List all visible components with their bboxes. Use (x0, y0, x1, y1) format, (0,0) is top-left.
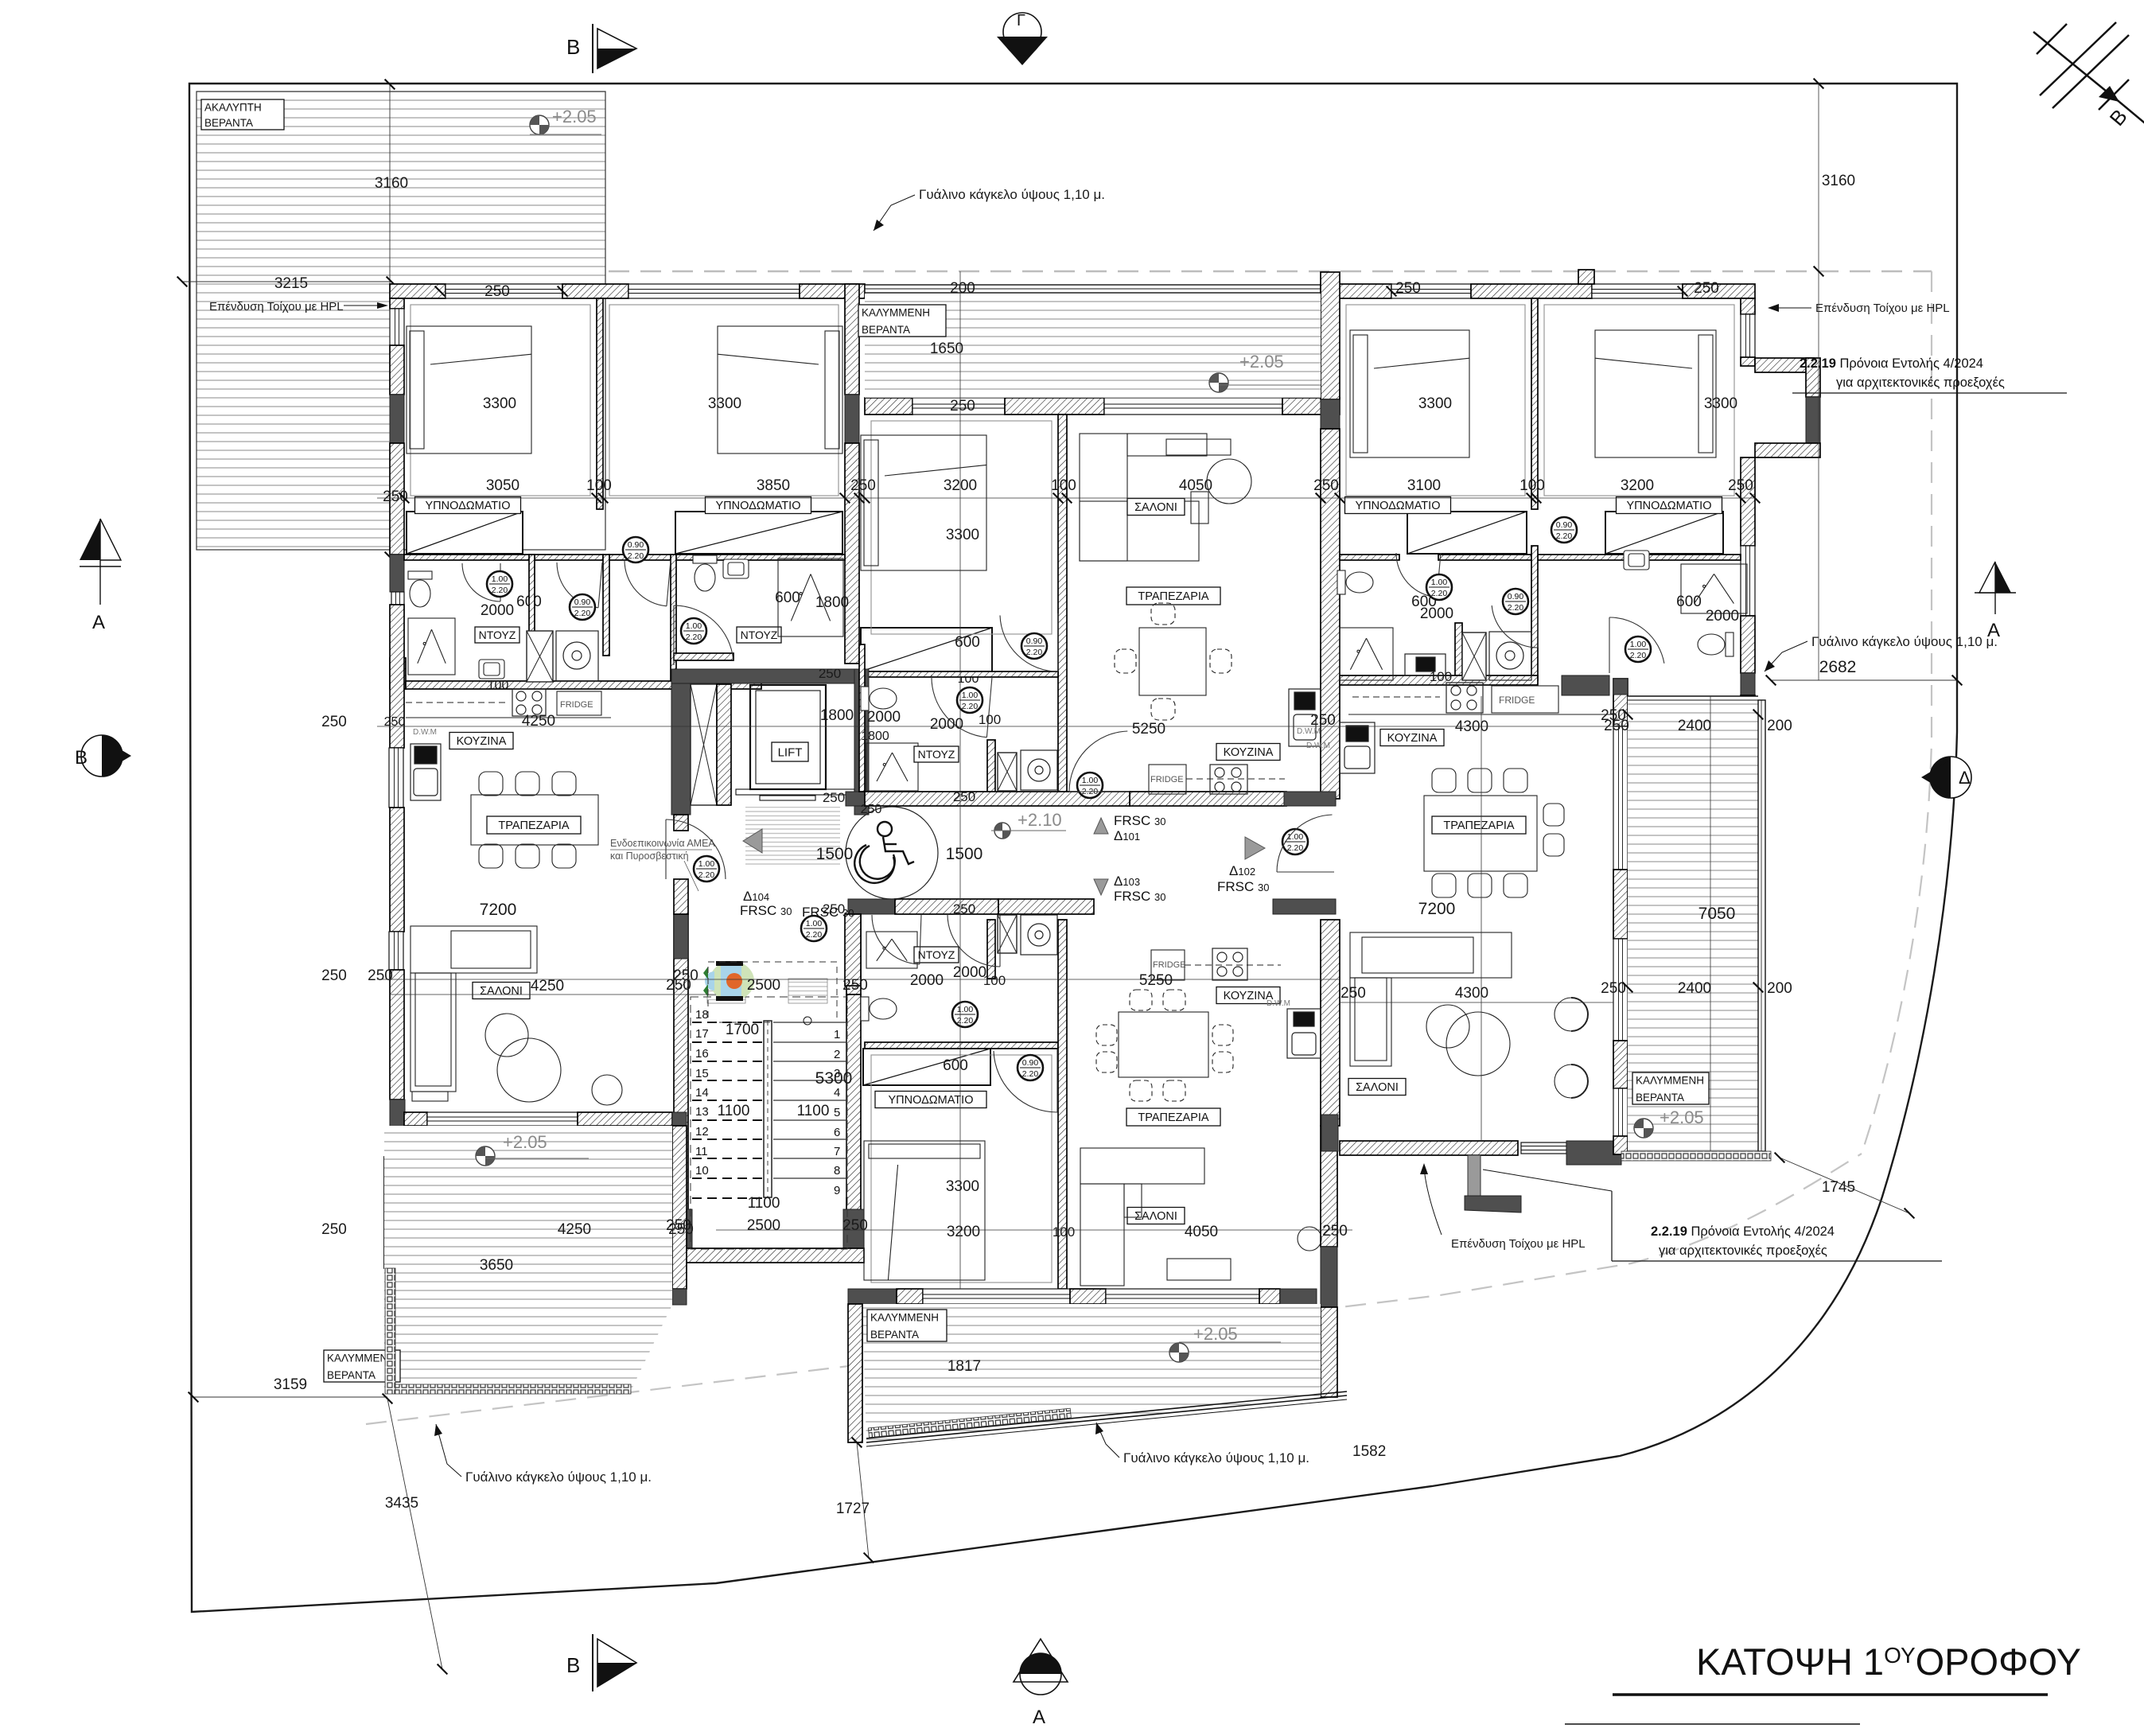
svg-text:4300: 4300 (1455, 718, 1488, 735)
svg-text:Δ101: Δ101 (1114, 828, 1140, 843)
svg-text:3300: 3300 (708, 395, 741, 412)
svg-text:3200: 3200 (1621, 477, 1654, 494)
svg-text:1100: 1100 (748, 1195, 780, 1212)
svg-text:ΝΤΟΥΖ: ΝΤΟΥΖ (741, 629, 778, 641)
svg-text:ΣΑΛΟΝΙ: ΣΑΛΟΝΙ (480, 985, 523, 998)
svg-text:για αρχιτεκτονικές προεξοχές: για αρχιτεκτονικές προεξοχές (1836, 376, 2005, 390)
svg-text:+2.05: +2.05 (1660, 1107, 1704, 1127)
svg-text:16: 16 (695, 1047, 709, 1061)
svg-text:250: 250 (1313, 477, 1339, 494)
svg-text:600: 600 (955, 634, 980, 651)
svg-text:0.90: 0.90 (1508, 592, 1524, 601)
svg-text:ΒΕΡΑΝΤΑ: ΒΕΡΑΝΤΑ (1636, 1092, 1684, 1103)
svg-text:+2.10: +2.10 (1018, 810, 1062, 830)
svg-text:1817: 1817 (947, 1358, 981, 1375)
svg-text:200: 200 (1767, 980, 1792, 997)
svg-text:FRSC 30: FRSC 30 (1217, 879, 1269, 894)
svg-text:2.20: 2.20 (492, 586, 508, 595)
svg-text:1.00: 1.00 (1431, 578, 1448, 587)
svg-text:2500: 2500 (747, 1217, 780, 1234)
svg-text:250: 250 (321, 967, 347, 984)
svg-text:Γυάλινο κάγκελο ύψους 1,10 μ.: Γυάλινο κάγκελο ύψους 1,10 μ. (1811, 634, 1998, 649)
svg-text:4250: 4250 (558, 1221, 591, 1238)
svg-text:4250: 4250 (522, 713, 555, 730)
svg-text:250: 250 (953, 901, 975, 917)
svg-text:ΤΡΑΠΕΖΑΡΙΑ: ΤΡΑΠΕΖΑΡΙΑ (498, 819, 569, 832)
svg-text:1.00: 1.00 (698, 859, 715, 869)
svg-text:250: 250 (321, 714, 347, 730)
svg-text:1100: 1100 (797, 1103, 830, 1119)
svg-text:1800: 1800 (820, 707, 854, 724)
svg-text:ΤΡΑΠΕΖΑΡΙΑ: ΤΡΑΠΕΖΑΡΙΑ (1138, 590, 1208, 603)
svg-text:7200: 7200 (1418, 900, 1456, 918)
svg-text:Δ102: Δ102 (1229, 863, 1255, 878)
svg-text:B: B (566, 1653, 580, 1677)
svg-text:2.20: 2.20 (628, 551, 644, 561)
svg-text:1800: 1800 (815, 594, 849, 611)
svg-text:FRIDGE: FRIDGE (1499, 695, 1535, 706)
svg-text:B: B (566, 35, 580, 59)
svg-text:2.20: 2.20 (957, 1016, 974, 1026)
svg-text:100: 100 (1051, 477, 1076, 494)
svg-text:100: 100 (1430, 669, 1452, 684)
svg-text:2.20: 2.20 (1630, 651, 1647, 660)
svg-text:2.20: 2.20 (698, 870, 715, 880)
svg-text:+2.05: +2.05 (1239, 352, 1284, 372)
svg-text:100: 100 (1519, 477, 1545, 494)
svg-text:2000: 2000 (1706, 608, 1739, 625)
svg-text:250: 250 (1322, 1223, 1348, 1240)
svg-text:ΥΠΝΟΔΩΜΑΤΙΟ: ΥΠΝΟΔΩΜΑΤΙΟ (716, 500, 801, 512)
svg-text:1700: 1700 (726, 1022, 759, 1038)
svg-text:2682: 2682 (1819, 658, 1857, 676)
svg-text:ΣΑΛΟΝΙ: ΣΑΛΟΝΙ (1134, 1210, 1177, 1223)
svg-text:ΥΠΝΟΔΩΜΑΤΙΟ: ΥΠΝΟΔΩΜΑΤΙΟ (1627, 500, 1712, 512)
svg-text:2.20: 2.20 (574, 609, 591, 618)
svg-text:8: 8 (834, 1164, 840, 1177)
svg-text:2.20: 2.20 (1287, 843, 1304, 853)
svg-text:2400: 2400 (1678, 980, 1711, 997)
svg-text:Δ104: Δ104 (743, 889, 769, 904)
svg-text:12: 12 (695, 1125, 709, 1139)
svg-text:3435: 3435 (385, 1495, 418, 1512)
svg-text:ΚΑΛΥΜΜΕΝΗ: ΚΑΛΥΜΜΕΝΗ (1636, 1075, 1704, 1087)
svg-text:1582: 1582 (1352, 1443, 1386, 1460)
svg-text:3300: 3300 (946, 1178, 979, 1195)
svg-text:1100: 1100 (718, 1103, 750, 1119)
svg-text:2000: 2000 (910, 972, 944, 989)
svg-text:3300: 3300 (1704, 395, 1737, 412)
svg-text:600: 600 (775, 590, 800, 606)
svg-text:2000: 2000 (930, 716, 963, 733)
svg-text:3300: 3300 (946, 527, 979, 543)
svg-text:11: 11 (695, 1145, 708, 1158)
svg-text:3650: 3650 (480, 1257, 513, 1274)
svg-text:2.20: 2.20 (1026, 648, 1043, 657)
svg-text:100: 100 (979, 712, 1001, 727)
svg-text:7200: 7200 (480, 901, 517, 919)
svg-text:1.00: 1.00 (1287, 832, 1304, 842)
svg-text:250: 250 (950, 398, 975, 415)
svg-text:ΚΑΛΥΜΜΕΝΗ: ΚΑΛΥΜΜΕΝΗ (870, 1312, 939, 1324)
svg-text:250: 250 (1340, 985, 1366, 1002)
svg-text:D.W.M: D.W.M (1267, 999, 1290, 1008)
svg-text:+2.05: +2.05 (1193, 1324, 1238, 1344)
svg-text:ΒΕΡΑΝΤΑ: ΒΕΡΑΝΤΑ (327, 1369, 375, 1381)
svg-text:10: 10 (695, 1164, 709, 1177)
svg-text:1.00: 1.00 (806, 919, 823, 928)
svg-text:600: 600 (943, 1057, 968, 1074)
svg-text:2000: 2000 (867, 709, 901, 726)
svg-text:1727: 1727 (836, 1501, 870, 1517)
svg-text:A: A (1033, 1707, 1045, 1728)
svg-text:LIFT: LIFT (778, 745, 803, 759)
svg-text:3050: 3050 (486, 477, 519, 494)
svg-text:5250: 5250 (1132, 721, 1165, 738)
svg-text:FRIDGE: FRIDGE (1150, 775, 1184, 784)
svg-text:2.20: 2.20 (1022, 1069, 1039, 1079)
svg-text:200: 200 (950, 280, 975, 297)
svg-text:1: 1 (834, 1028, 840, 1041)
svg-text:Γυάλινο κάγκελο ύψους 1,10 μ.: Γυάλινο κάγκελο ύψους 1,10 μ. (465, 1469, 652, 1485)
svg-text:3850: 3850 (757, 477, 790, 494)
svg-text:250: 250 (384, 715, 406, 729)
svg-text:2.2.19 Πρόνοια Εντολής 4/2024: 2.2.19 Πρόνοια Εντολής 4/2024 (1651, 1224, 1835, 1239)
svg-text:Δ: Δ (1959, 768, 1971, 788)
svg-text:FRIDGE: FRIDGE (1153, 960, 1186, 970)
svg-text:ΒΕΡΑΝΤΑ: ΒΕΡΑΝΤΑ (870, 1329, 919, 1341)
svg-text:ΚΑΛΥΜΜΕΝΗ: ΚΑΛΥΜΜΕΝΗ (862, 307, 930, 319)
svg-text:FRSC 30: FRSC 30 (1114, 813, 1165, 828)
svg-text:3159: 3159 (274, 1376, 307, 1393)
svg-text:250: 250 (842, 1217, 868, 1234)
svg-text:250: 250 (383, 488, 408, 505)
svg-text:ΣΑΛΟΝΙ: ΣΑΛΟΝΙ (1134, 501, 1177, 514)
svg-text:14: 14 (695, 1086, 709, 1100)
svg-text:B: B (75, 747, 88, 769)
svg-text:1.00: 1.00 (1082, 776, 1099, 785)
svg-text:ΥΠΝΟΔΩΜΑΤΙΟ: ΥΠΝΟΔΩΜΑΤΙΟ (889, 1094, 974, 1107)
svg-text:1.00: 1.00 (492, 574, 508, 584)
svg-text:+2.05: +2.05 (503, 1132, 547, 1152)
svg-text:ΒΕΡΑΝΤΑ: ΒΕΡΑΝΤΑ (862, 324, 910, 336)
svg-text:1.00: 1.00 (686, 621, 702, 631)
svg-text:100: 100 (586, 477, 612, 494)
svg-text:250: 250 (1601, 980, 1626, 997)
svg-text:100: 100 (983, 973, 1006, 988)
svg-text:2400: 2400 (1678, 718, 1711, 734)
svg-text:3200: 3200 (947, 1224, 980, 1240)
svg-text:2.20: 2.20 (806, 930, 823, 940)
svg-text:250: 250 (1728, 477, 1753, 494)
svg-text:4250: 4250 (531, 978, 564, 995)
svg-text:600: 600 (1676, 594, 1702, 610)
svg-text:ΑΚΑΛΥΠΤΗ: ΑΚΑΛΥΠΤΗ (204, 102, 262, 114)
svg-text:6: 6 (834, 1126, 840, 1139)
svg-text:250: 250 (1694, 280, 1719, 297)
svg-text:ΤΡΑΠΕΖΑΡΙΑ: ΤΡΑΠΕΖΑΡΙΑ (1443, 819, 1514, 832)
svg-text:Επένδυση Τοίχου με HPL: Επένδυση Τοίχου με HPL (1451, 1237, 1586, 1251)
svg-text:0.90: 0.90 (1556, 520, 1573, 530)
svg-text:4050: 4050 (1185, 1224, 1218, 1240)
svg-text:2.20: 2.20 (686, 633, 702, 642)
svg-text:ΣΑΛΟΝΙ: ΣΑΛΟΝΙ (1356, 1081, 1399, 1094)
svg-text:5: 5 (834, 1106, 840, 1119)
svg-text:D.W.M: D.W.M (413, 728, 437, 737)
svg-text:0.90: 0.90 (574, 597, 591, 607)
svg-text:1745: 1745 (1822, 1179, 1855, 1196)
svg-text:Επένδυση Τοίχου με HPL: Επένδυση Τοίχου με HPL (1815, 302, 1950, 315)
svg-text:200: 200 (1767, 718, 1792, 734)
svg-text:250: 250 (368, 967, 393, 984)
svg-text:2.20: 2.20 (962, 702, 979, 711)
svg-text:ΥΠΝΟΔΩΜΑΤΙΟ: ΥΠΝΟΔΩΜΑΤΙΟ (1356, 500, 1441, 512)
svg-text:1650: 1650 (930, 341, 963, 357)
svg-text:7050: 7050 (1698, 905, 1736, 923)
svg-text:Γ: Γ (1017, 12, 1025, 29)
svg-text:0.90: 0.90 (628, 540, 644, 550)
svg-text:3100: 3100 (1407, 477, 1441, 494)
svg-text:9: 9 (834, 1184, 840, 1197)
svg-text:250: 250 (321, 1221, 347, 1238)
svg-text:2000: 2000 (953, 964, 986, 981)
svg-text:250: 250 (484, 283, 510, 300)
svg-text:250: 250 (823, 901, 845, 917)
svg-text:1.00: 1.00 (962, 691, 979, 700)
svg-text:3215: 3215 (274, 275, 308, 292)
svg-text:5300: 5300 (815, 1069, 853, 1088)
svg-text:100: 100 (1053, 1224, 1075, 1240)
svg-text:1500: 1500 (816, 845, 854, 863)
svg-text:ΝΤΟΥΖ: ΝΤΟΥΖ (918, 948, 955, 961)
svg-text:ΝΤΟΥΖ: ΝΤΟΥΖ (918, 748, 955, 761)
svg-text:ΒΕΡΑΝΤΑ: ΒΕΡΑΝΤΑ (204, 117, 253, 129)
svg-text:17: 17 (695, 1027, 709, 1041)
svg-text:250: 250 (850, 477, 876, 494)
svg-text:Δ103: Δ103 (1114, 874, 1140, 889)
svg-text:250: 250 (823, 790, 845, 805)
svg-text:1.00: 1.00 (957, 1005, 974, 1014)
svg-text:250: 250 (953, 789, 975, 804)
svg-text:0.90: 0.90 (1022, 1058, 1039, 1068)
svg-text:250: 250 (1395, 280, 1421, 297)
svg-text:250: 250 (861, 803, 882, 816)
svg-text:2.20: 2.20 (1431, 589, 1448, 598)
svg-text:4: 4 (834, 1086, 840, 1100)
svg-text:FRSC 30: FRSC 30 (1114, 889, 1165, 904)
svg-text:για αρχιτεκτονικές προεξοχές: για αρχιτεκτονικές προεξοχές (1659, 1244, 1827, 1258)
svg-text:2.20: 2.20 (1508, 603, 1524, 613)
svg-text:ΚΟΥΖΙΝΑ: ΚΟΥΖΙΝΑ (1387, 732, 1438, 745)
svg-text:3300: 3300 (1418, 395, 1452, 412)
svg-text:και Πυροσβεστική: και Πυροσβεστική (610, 850, 689, 862)
svg-text:FRSC 30: FRSC 30 (740, 903, 792, 918)
svg-text:250: 250 (819, 666, 841, 681)
svg-text:2: 2 (834, 1048, 840, 1061)
svg-text:FRIDGE: FRIDGE (560, 700, 593, 710)
svg-text:ΤΡΑΠΕΖΑΡΙΑ: ΤΡΑΠΕΖΑΡΙΑ (1138, 1111, 1208, 1124)
svg-text:Επένδυση Τοίχου με HPL: Επένδυση Τοίχου με HPL (209, 300, 344, 313)
svg-text:2.20: 2.20 (1556, 531, 1573, 541)
svg-text:ΥΠΝΟΔΩΜΑΤΙΟ: ΥΠΝΟΔΩΜΑΤΙΟ (426, 500, 511, 512)
svg-text:+2.05: +2.05 (552, 107, 597, 127)
svg-text:100: 100 (488, 679, 509, 692)
svg-text:3300: 3300 (483, 395, 516, 412)
svg-text:1.00: 1.00 (1630, 640, 1647, 649)
svg-text:15: 15 (695, 1067, 709, 1080)
svg-text:Γυάλινο κάγκελο ύψους 1,10 μ.: Γυάλινο κάγκελο ύψους 1,10 μ. (919, 187, 1105, 202)
svg-text:2000: 2000 (481, 602, 514, 619)
svg-text:2.2.19 Πρόνοια Εντολής 4/2024: 2.2.19 Πρόνοια Εντολής 4/2024 (1800, 356, 1983, 371)
svg-text:250: 250 (666, 1217, 691, 1234)
svg-text:5250: 5250 (1139, 972, 1173, 989)
svg-text:Γυάλινο κάγκελο ύψους 1,10 μ.: Γυάλινο κάγκελο ύψους 1,10 μ. (1123, 1450, 1309, 1465)
svg-text:3160: 3160 (1822, 173, 1855, 189)
svg-text:Ενδοεπικοινωνία ΑΜΕΑ: Ενδοεπικοινωνία ΑΜΕΑ (610, 838, 715, 849)
svg-text:4050: 4050 (1179, 477, 1212, 494)
svg-text:13: 13 (695, 1105, 709, 1119)
svg-text:1500: 1500 (946, 845, 983, 863)
svg-text:7: 7 (834, 1145, 840, 1158)
svg-text:ΚΟΥΖΙΝΑ: ΚΟΥΖΙΝΑ (1224, 746, 1274, 759)
svg-text:2000: 2000 (1420, 605, 1453, 622)
svg-text:ΚΟΥΖΙΝΑ: ΚΟΥΖΙΝΑ (457, 735, 507, 748)
svg-text:ΝΤΟΥΖ: ΝΤΟΥΖ (479, 629, 516, 641)
svg-text:4300: 4300 (1455, 985, 1488, 1002)
svg-text:1800: 1800 (861, 730, 889, 743)
svg-text:18: 18 (695, 1008, 709, 1022)
svg-text:0.90: 0.90 (1026, 636, 1043, 646)
svg-text:250: 250 (1310, 712, 1336, 729)
svg-text:D.W.M: D.W.M (1306, 741, 1330, 750)
svg-text:3160: 3160 (375, 175, 408, 192)
svg-text:250: 250 (1601, 707, 1626, 724)
svg-text:A: A (92, 612, 105, 633)
